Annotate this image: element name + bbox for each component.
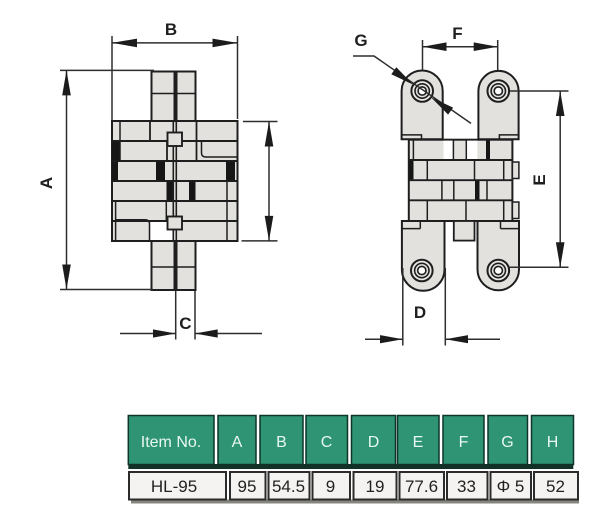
svg-text:F: F [452, 24, 462, 43]
svg-text:C: C [321, 434, 333, 451]
svg-text:95: 95 [238, 477, 257, 496]
svg-text:19: 19 [366, 477, 385, 496]
svg-text:9: 9 [326, 477, 335, 496]
svg-text:H: H [547, 434, 559, 451]
svg-text:D: D [368, 434, 380, 451]
svg-text:C: C [179, 314, 191, 333]
svg-text:Item No.: Item No. [141, 434, 201, 451]
svg-text:A: A [232, 434, 243, 451]
svg-text:E: E [413, 434, 424, 451]
svg-text:77.6: 77.6 [405, 477, 438, 496]
svg-text:52: 52 [546, 477, 565, 496]
svg-text:B: B [276, 434, 287, 451]
svg-text:Φ 5: Φ 5 [497, 477, 525, 496]
svg-text:33: 33 [457, 477, 476, 496]
svg-text:A: A [37, 177, 56, 189]
svg-text:F: F [459, 434, 469, 451]
svg-text:E: E [530, 174, 549, 185]
svg-text:B: B [165, 20, 177, 39]
svg-text:HL-95: HL-95 [151, 477, 197, 496]
svg-text:G: G [354, 31, 367, 50]
svg-text:G: G [501, 434, 513, 451]
svg-text:54.5: 54.5 [272, 477, 305, 496]
svg-text:D: D [414, 303, 426, 322]
